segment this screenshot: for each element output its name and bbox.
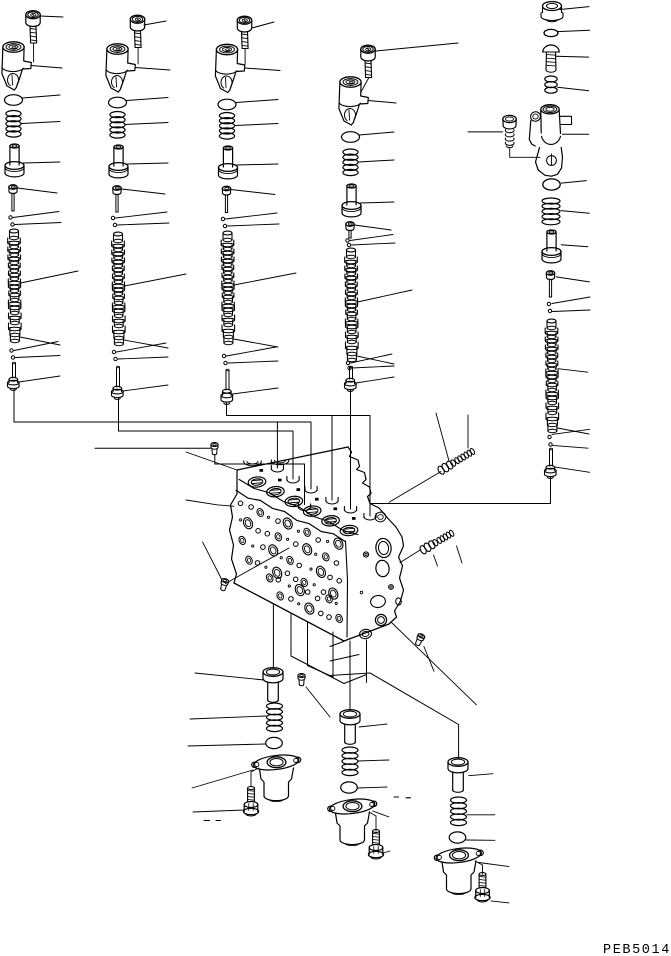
svg-text:PEB5014: PEB5014: [603, 943, 671, 956]
